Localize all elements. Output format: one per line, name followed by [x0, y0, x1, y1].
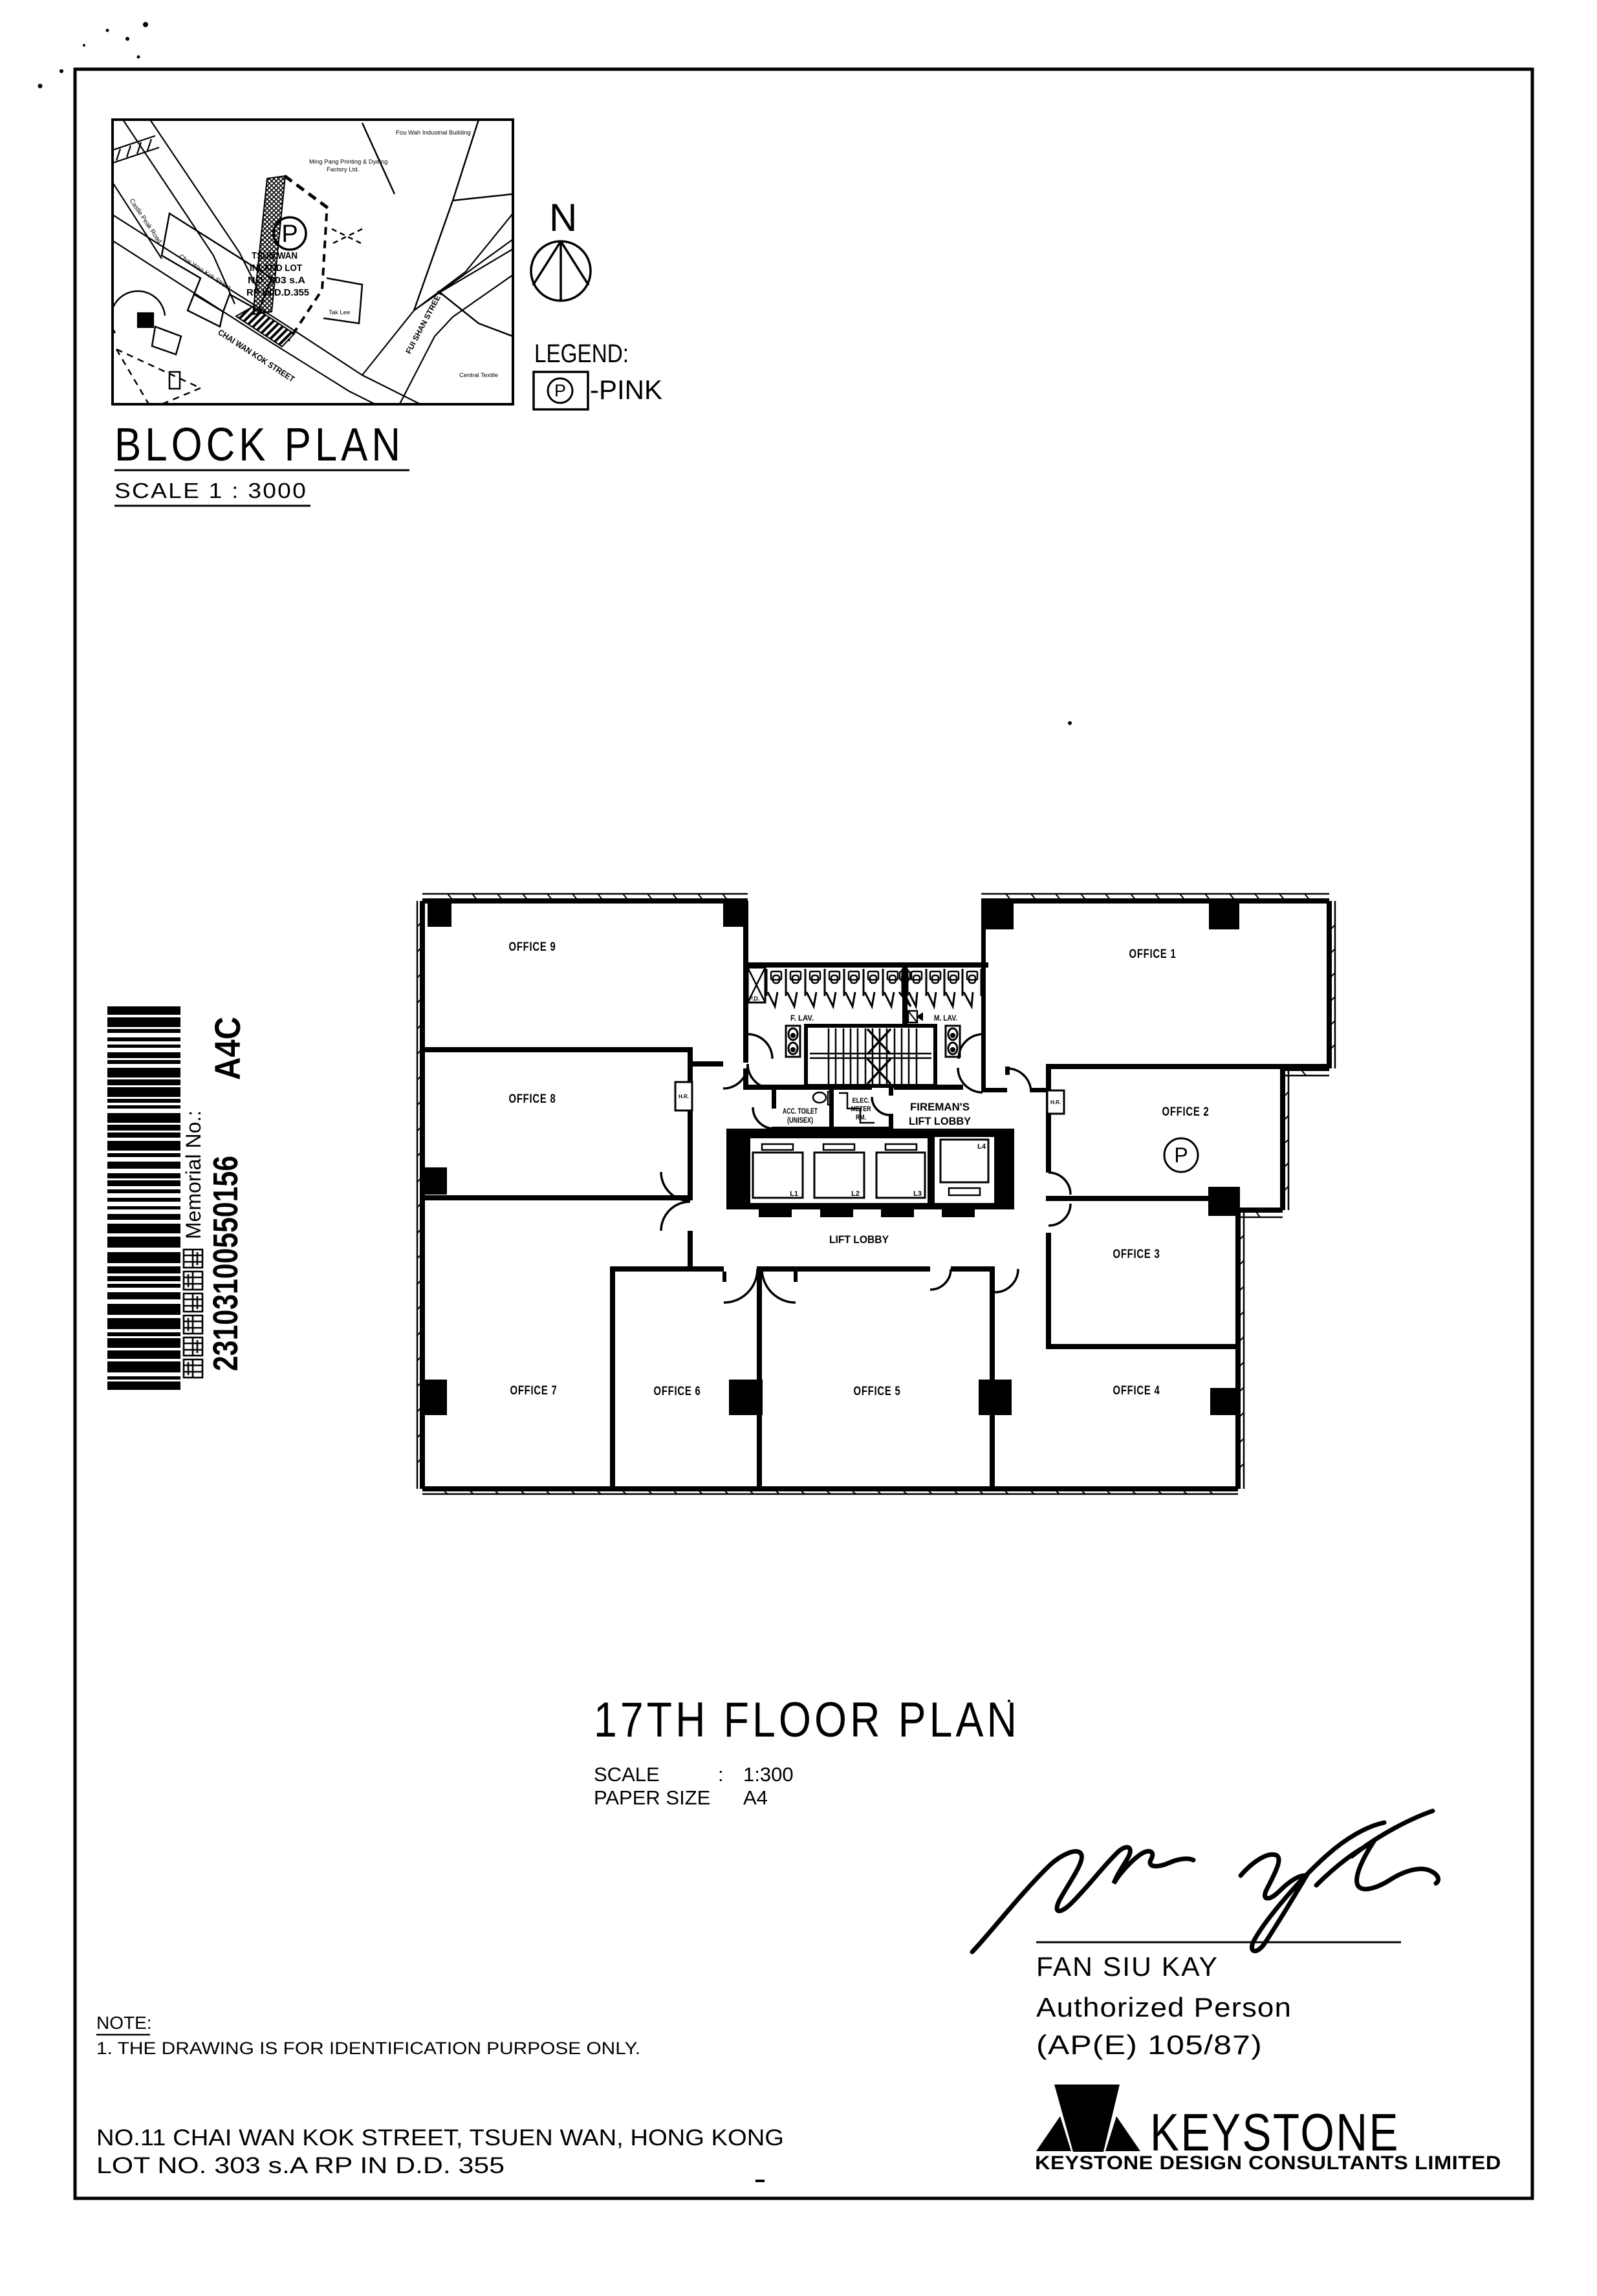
svg-text:P.D.: P.D. — [749, 995, 759, 1002]
svg-text:INLAND LOT: INLAND LOT — [250, 263, 302, 274]
svg-text:Memorial No.:: Memorial No.: — [182, 1110, 205, 1239]
svg-text:Authorized Person: Authorized Person — [1036, 1992, 1292, 2022]
svg-text:ELEC.: ELEC. — [853, 1097, 870, 1105]
svg-text:N: N — [549, 196, 577, 239]
svg-text:-PINK: -PINK — [590, 374, 662, 405]
svg-text:BLOCK PLAN: BLOCK PLAN — [114, 419, 404, 471]
svg-text:LOT NO. 303 s.A RP IN D.: LOT NO. 303 s.A RP IN D.D. 355 — [96, 2153, 505, 2178]
svg-text:1. THE DRAWING IS FOR IDE: 1. THE DRAWING IS FOR IDENTIFICATION PUR… — [96, 2039, 640, 2058]
svg-text:RP IN D.D.355: RP IN D.D.355 — [246, 287, 309, 298]
svg-text:LIFT LOBBY: LIFT LOBBY — [909, 1115, 972, 1127]
svg-text:OFFICE 2: OFFICE 2 — [1162, 1105, 1210, 1119]
svg-text:Ming Pang Printing & Dyeing: Ming Pang Printing & Dyeing — [309, 158, 387, 166]
svg-text:Factory Ltd.: Factory Ltd. — [327, 166, 359, 173]
svg-text:NO.11 CHAI WAN KOK STREET,: NO.11 CHAI WAN KOK STREET, TSUEN WAN, HO… — [96, 2125, 784, 2150]
svg-text:ACC. TOILET: ACC. TOILET — [783, 1108, 818, 1116]
svg-text:P: P — [1174, 1143, 1188, 1167]
svg-text:OFFICE 7: OFFICE 7 — [510, 1384, 558, 1398]
svg-text:LEGEND:: LEGEND: — [534, 340, 629, 368]
svg-text:OFFICE 3: OFFICE 3 — [1113, 1248, 1160, 1261]
svg-text:Central Textile: Central Textile — [459, 372, 498, 379]
svg-text:F. LAV.: F. LAV. — [790, 1013, 814, 1023]
svg-text:OFFICE 5: OFFICE 5 — [854, 1385, 901, 1398]
svg-text:OFFICE 4: OFFICE 4 — [1113, 1384, 1160, 1398]
svg-text:L3: L3 — [913, 1190, 922, 1198]
svg-text:OFFICE 1: OFFICE 1 — [1129, 948, 1177, 961]
svg-text:NO. 303 s.A: NO. 303 s.A — [248, 275, 305, 286]
svg-text:Fou Wah Industrial Building: Fou Wah Industrial Building — [396, 129, 471, 136]
svg-text:M. LAV.: M. LAV. — [934, 1013, 957, 1023]
svg-text:A4: A4 — [743, 1786, 768, 1809]
svg-text:L4: L4 — [977, 1143, 986, 1151]
svg-text:SCALE: SCALE — [594, 1763, 660, 1786]
svg-text:Tak Lee: Tak Lee — [329, 309, 350, 316]
svg-text:23103100550156: 23103100550156 — [206, 1156, 245, 1371]
svg-text:(AP(E) 105/87): (AP(E) 105/87) — [1036, 2030, 1263, 2060]
svg-text::: : — [718, 1763, 724, 1786]
svg-text:FIREMAN'S: FIREMAN'S — [910, 1101, 970, 1113]
svg-text:(UNISEX): (UNISEX) — [787, 1117, 813, 1125]
svg-text:NOTE:: NOTE: — [96, 2013, 152, 2033]
svg-text:KEYSTONE DESIGN CONSULTANTS: KEYSTONE DESIGN CONSULTANTS LIMITED — [1035, 2152, 1501, 2174]
svg-text:P: P — [554, 381, 566, 400]
svg-text:PAPER SIZE: PAPER SIZE — [594, 1786, 710, 1809]
svg-text:H.R.: H.R. — [1050, 1099, 1061, 1105]
svg-text:L2: L2 — [851, 1190, 860, 1198]
svg-text:TSUN WAN: TSUN WAN — [252, 250, 298, 261]
svg-text:LIFT LOBBY: LIFT LOBBY — [829, 1233, 889, 1246]
svg-text:FAN SIU KAY: FAN SIU KAY — [1036, 1951, 1219, 1982]
svg-text:17TH FLOOR PLAN: 17TH FLOOR PLAN — [594, 1693, 1020, 1748]
svg-text:SCALE 1 : 3000: SCALE 1 : 3000 — [114, 479, 307, 503]
svg-text:A4C: A4C — [207, 1017, 248, 1080]
svg-text:H.R.: H.R. — [679, 1094, 689, 1099]
svg-text:OFFICE 8: OFFICE 8 — [509, 1092, 556, 1106]
svg-text:OFFICE 9: OFFICE 9 — [509, 940, 556, 954]
svg-text:P: P — [281, 221, 298, 248]
svg-text:1:300: 1:300 — [743, 1763, 794, 1786]
svg-text:L1: L1 — [790, 1190, 798, 1198]
svg-text:OFFICE 6: OFFICE 6 — [654, 1385, 701, 1398]
